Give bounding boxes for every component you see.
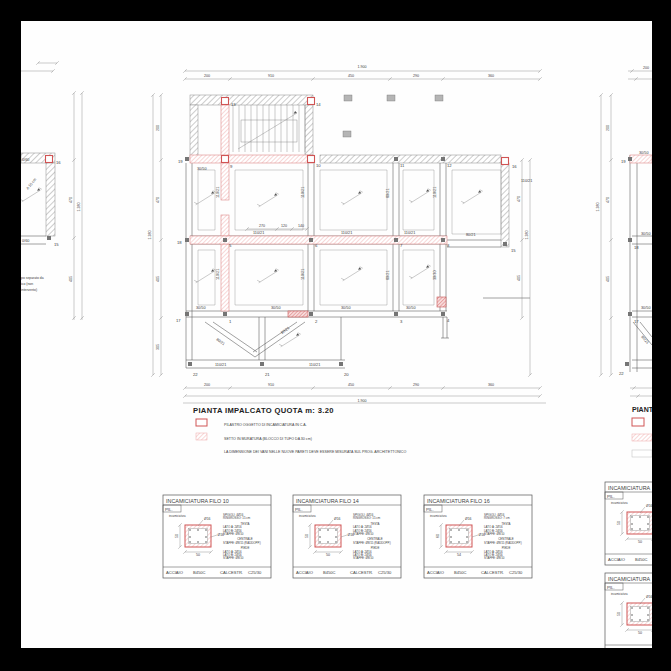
column-marker bbox=[394, 157, 398, 161]
dimension-label: 60 bbox=[436, 534, 440, 538]
rebar-dot bbox=[631, 516, 632, 517]
dimension-label: 200 bbox=[606, 125, 610, 131]
note-text: ico (non bbox=[21, 282, 33, 286]
node-number: 18 bbox=[634, 245, 639, 250]
bar-callout: Ø16 bbox=[465, 517, 472, 521]
column-marker bbox=[185, 157, 189, 161]
dimension-label: 360 bbox=[488, 74, 494, 78]
drawing-sheet-svg: PIANTA PIANTA IMPALCATO QUOTA m: 3.20 PI… bbox=[0, 0, 671, 671]
legend-swatch-red-hatch bbox=[632, 434, 652, 441]
dimension-label: 450 bbox=[348, 383, 354, 387]
rebar-dot bbox=[205, 529, 206, 530]
material-spec: ACCIAIO bbox=[427, 570, 444, 575]
beam-label: 110/21 bbox=[341, 231, 352, 235]
column-marker bbox=[628, 238, 632, 242]
beam-label: 30/50 bbox=[406, 306, 416, 310]
rebar-dot bbox=[647, 619, 648, 620]
section-note: incamiciatura bbox=[611, 592, 628, 596]
material-spec: B450C bbox=[323, 570, 336, 575]
node-number: 15 bbox=[511, 248, 516, 253]
rebar-dot bbox=[631, 614, 632, 615]
beam-label: 110/21 bbox=[404, 231, 415, 235]
frame-top bbox=[0, 0, 671, 21]
spec-line: STAFFE: Ø8/10 bbox=[353, 556, 374, 560]
detail-box-title: INCAMICIATURA FILO 14 bbox=[296, 498, 359, 504]
dimension-label: 360 bbox=[488, 383, 494, 387]
note-text: po separato da bbox=[21, 276, 44, 280]
legend-swatch-plain bbox=[632, 450, 652, 457]
spec-header: PIEDE bbox=[371, 546, 380, 550]
beam-label: 30/50 bbox=[271, 306, 281, 310]
beam-label: 0/60 bbox=[22, 158, 29, 162]
rebar-dot bbox=[466, 536, 467, 537]
column-marker bbox=[223, 312, 227, 316]
dimension-label: 140 bbox=[298, 224, 304, 228]
beam-label: 110/21 bbox=[521, 179, 532, 183]
dimension-label: 1.380 bbox=[148, 231, 152, 240]
dimension-label: 50 bbox=[617, 612, 621, 616]
column-marker-jacketed bbox=[222, 98, 229, 105]
spec-line: RINGROSSO: 15 cm bbox=[223, 516, 251, 520]
dimension-label: 270 bbox=[259, 224, 265, 228]
beam-label: 110/21 bbox=[216, 269, 220, 280]
column-core bbox=[319, 529, 338, 544]
node-number: 19 bbox=[621, 159, 626, 164]
material-spec: B450C bbox=[635, 557, 648, 562]
note-text: intervento) bbox=[21, 288, 37, 292]
dimension-label: 405 bbox=[606, 276, 610, 282]
column-core bbox=[189, 529, 208, 544]
rebar-dot bbox=[639, 516, 640, 517]
beam-label: 30/50 bbox=[341, 306, 351, 310]
node-number: 19 bbox=[178, 159, 183, 164]
spec-line: RINGROSSO: 7 cm bbox=[484, 516, 510, 520]
viewer-canvas: PIANTA PIANTA IMPALCATO QUOTA m: 3.20 PI… bbox=[0, 0, 671, 671]
pil-label: PIL. bbox=[607, 585, 615, 590]
legend-label: SETTO IN MURATURA (BLOCCO DI TUFO DA 30 … bbox=[224, 437, 312, 441]
dimension-label: 910 bbox=[268, 74, 274, 78]
spec-line: STAFFE: Ø8/10 bbox=[484, 556, 505, 560]
red-masonry-strip bbox=[221, 105, 229, 155]
beam-label: 30/50 bbox=[641, 306, 651, 310]
spec-line: STAFFE: Ø8/15 (RADDOPP.) bbox=[353, 541, 391, 545]
rebar-dot bbox=[647, 523, 648, 524]
pil-label: PIL. bbox=[607, 494, 615, 499]
spec-line: STAFFE: Ø8/10 bbox=[484, 532, 505, 536]
spec-header: TESTA bbox=[501, 522, 510, 526]
column-marker bbox=[628, 157, 632, 161]
pil-label: PIL. bbox=[295, 507, 303, 512]
red-jacket-segment bbox=[288, 311, 308, 317]
spec-header: TESTA bbox=[370, 522, 379, 526]
rebar-dot bbox=[327, 541, 328, 542]
column-marker bbox=[47, 236, 51, 240]
node-number: 13 bbox=[231, 102, 236, 107]
spec-line: STAFFE: Ø8/15 (RADDOPP.) bbox=[223, 541, 261, 545]
rebar-dot bbox=[197, 529, 198, 530]
rebar-dot bbox=[639, 607, 640, 608]
node-number: 12 bbox=[447, 163, 452, 168]
rebar-dot bbox=[319, 541, 320, 542]
section-note: incamiciatura bbox=[611, 501, 628, 505]
rebar-dot bbox=[319, 529, 320, 530]
beam-label: 30/50 bbox=[641, 232, 651, 236]
dimension-label: 200 bbox=[156, 125, 160, 131]
detail-box-title: INCAMICIATURA bbox=[608, 576, 651, 582]
rebar-dot bbox=[205, 536, 206, 537]
rebar-dot bbox=[450, 536, 451, 537]
column-marker bbox=[503, 242, 507, 246]
dimension-label: 50 bbox=[175, 534, 179, 538]
column-marker bbox=[628, 312, 632, 316]
dimension-label: 50 bbox=[326, 553, 330, 557]
dimension-label: 50 bbox=[305, 534, 309, 538]
column-marker bbox=[441, 157, 445, 161]
dimension-label: 470 bbox=[517, 196, 521, 202]
dimension-label: 200 bbox=[643, 66, 649, 70]
material-spec: ACCIAIO bbox=[608, 557, 625, 562]
column-marker bbox=[188, 362, 192, 366]
node-number: 20 bbox=[344, 372, 349, 377]
pil-label: PIL. bbox=[426, 507, 434, 512]
column-marker bbox=[394, 238, 398, 242]
node-number: 14 bbox=[316, 102, 321, 107]
rebar-dot bbox=[335, 536, 336, 537]
node-number: 22 bbox=[193, 372, 198, 377]
dimension-label: 470 bbox=[69, 197, 73, 203]
dimension-label: 1.380 bbox=[77, 203, 81, 212]
material-spec: ACCIAIO bbox=[166, 570, 183, 575]
section-note: incamiciatura bbox=[430, 514, 447, 518]
beam-label: 110/21 bbox=[216, 187, 220, 198]
rebar-dot bbox=[631, 523, 632, 524]
rebar-dot bbox=[647, 516, 648, 517]
spec-header: PIEDE bbox=[241, 546, 250, 550]
spec-header: PIEDE bbox=[502, 546, 511, 550]
material-spec: C25/30 bbox=[509, 570, 523, 575]
beam-label: 110/21 bbox=[253, 231, 264, 235]
red-masonry-strip bbox=[190, 155, 313, 163]
rebar-dot bbox=[647, 607, 648, 608]
dimension-label: 470 bbox=[156, 197, 160, 203]
rebar-dot bbox=[458, 541, 459, 542]
dimension-label: 54 bbox=[457, 553, 461, 557]
legend-swatch-red-outline bbox=[632, 418, 644, 426]
column-marker-jacketed bbox=[46, 156, 53, 163]
section-note: incamiciatura bbox=[299, 514, 316, 518]
column-marker-jacketed bbox=[308, 98, 315, 105]
dimension-label: 50 bbox=[638, 631, 642, 635]
column-marker bbox=[223, 238, 227, 242]
rebar-dot bbox=[450, 529, 451, 530]
column-marker bbox=[339, 362, 343, 366]
rebar-dot bbox=[450, 541, 451, 542]
column-marker bbox=[309, 312, 313, 316]
column-marker bbox=[394, 312, 398, 316]
rebar-dot bbox=[197, 541, 198, 542]
detail-box-title: INCAMICIATURA bbox=[608, 485, 651, 491]
column-marker bbox=[625, 362, 629, 366]
dimension-label: 290 bbox=[413, 383, 419, 387]
dimension-label: 910 bbox=[268, 383, 274, 387]
legend-swatch-red-outline bbox=[196, 419, 207, 426]
column-marker bbox=[441, 238, 445, 242]
beam-label: 110/21 bbox=[309, 363, 320, 367]
node-number: 15 bbox=[54, 242, 59, 247]
material-spec: CALCESTR. bbox=[481, 570, 504, 575]
rebar-dot bbox=[639, 528, 640, 529]
frame-bottom bbox=[0, 648, 671, 671]
column-core bbox=[450, 529, 469, 544]
masonry-wall bbox=[190, 105, 198, 160]
legend-label: PILASTRO OGGETTO DI INCAMICIATURA IN C.A… bbox=[224, 423, 307, 427]
column-core bbox=[631, 516, 650, 531]
rebar-dot bbox=[327, 529, 328, 530]
rebar-dot bbox=[631, 619, 632, 620]
rebar-dot bbox=[189, 529, 190, 530]
spec-line: STAFFE: Ø8/10 bbox=[223, 556, 244, 560]
column-marker-jacketed bbox=[308, 156, 315, 163]
node-number: 10 bbox=[316, 163, 321, 168]
rebar-dot bbox=[335, 541, 336, 542]
dimension-label: 200 bbox=[204, 74, 210, 78]
dimension-label: 1.900 bbox=[358, 65, 367, 69]
beam-label: 110/21 bbox=[433, 187, 437, 198]
existing-pillar bbox=[344, 95, 352, 101]
node-number: 16 bbox=[512, 164, 517, 169]
dimension-label: 50 bbox=[196, 553, 200, 557]
detail-box-title: INCAMICIATURA FILO 16 bbox=[427, 498, 490, 504]
spec-header: TESTA bbox=[240, 522, 249, 526]
beam-label: 80/21 bbox=[466, 233, 476, 237]
bar-callout: Ø16 bbox=[646, 595, 653, 599]
frame-right bbox=[652, 0, 671, 671]
dimension-label: 50 bbox=[617, 521, 621, 525]
column-core bbox=[631, 607, 650, 622]
beam-label: 30/30 bbox=[433, 270, 437, 280]
rebar-dot bbox=[335, 529, 336, 530]
column-marker bbox=[260, 362, 264, 366]
rebar-dot bbox=[458, 529, 459, 530]
material-spec: ACCIAIO bbox=[296, 570, 313, 575]
dimension-label: 470 bbox=[606, 197, 610, 203]
node-number: 16 bbox=[56, 160, 61, 165]
dimension-label: 405 bbox=[517, 275, 521, 281]
dimension-label: 405 bbox=[156, 276, 160, 282]
existing-pillar bbox=[343, 131, 351, 137]
beam-label: 0/60 bbox=[22, 239, 29, 243]
rebar-dot bbox=[631, 607, 632, 608]
spec-line: STAFFE: Ø8/10 bbox=[223, 532, 244, 536]
detail-box-title: INCAMICIATURA FILO 10 bbox=[166, 498, 229, 504]
rebar-dot bbox=[647, 614, 648, 615]
rebar-dot bbox=[189, 536, 190, 537]
rebar-dot bbox=[189, 541, 190, 542]
material-spec: B450C bbox=[193, 570, 206, 575]
rebar-dot bbox=[466, 541, 467, 542]
column-marker bbox=[309, 238, 313, 242]
section-note: incamiciatura bbox=[169, 514, 186, 518]
node-number: 21 bbox=[265, 372, 270, 377]
masonry-wall bbox=[46, 163, 55, 236]
beam-label: 110/21 bbox=[301, 269, 305, 280]
legend-swatch-red-hatch bbox=[196, 433, 207, 440]
legend-note: LA DIMENSIONE DEI VANI NELLE NUOVE PARET… bbox=[224, 450, 406, 454]
beam-label: 30/50 bbox=[197, 167, 207, 171]
dimension-label: 1.380 bbox=[525, 231, 529, 240]
column-marker bbox=[441, 312, 445, 316]
node-number: 18 bbox=[177, 240, 182, 245]
existing-pillar bbox=[387, 95, 395, 101]
rebar-dot bbox=[205, 541, 206, 542]
dimension-label: 405 bbox=[69, 276, 73, 282]
spec-line: STAFFE: Ø8/10 bbox=[353, 532, 374, 536]
beam-label: 110/21 bbox=[215, 363, 226, 367]
dimension-label: 1.380 bbox=[596, 203, 600, 212]
material-spec: CALCESTR. bbox=[220, 570, 243, 575]
column-marker bbox=[185, 238, 189, 242]
rebar-dot bbox=[647, 528, 648, 529]
red-masonry-strip bbox=[221, 215, 229, 236]
node-number: 11 bbox=[400, 163, 405, 168]
rebar-dot bbox=[466, 529, 467, 530]
plan-title: PIANTA IMPALCATO QUOTA m: 3.20 bbox=[193, 406, 334, 415]
node-number: 17 bbox=[176, 318, 181, 323]
masonry-wall bbox=[320, 155, 501, 163]
material-spec: CALCESTR. bbox=[350, 570, 373, 575]
masonry-wall bbox=[305, 105, 313, 155]
dimension-label: 50 bbox=[638, 540, 642, 544]
bar-callout: Ø16 bbox=[646, 504, 653, 508]
bar-callout: Ø16 bbox=[334, 517, 341, 521]
beam-label: 30/50 bbox=[196, 306, 206, 310]
dimension-label: 290 bbox=[413, 74, 419, 78]
dimension-label: 1.900 bbox=[358, 399, 367, 403]
rebar-dot bbox=[319, 536, 320, 537]
red-masonry-strip bbox=[221, 244, 229, 311]
red-masonry-strip bbox=[221, 163, 229, 200]
column-marker bbox=[185, 312, 189, 316]
dimension-label: 305 bbox=[156, 344, 160, 350]
pil-label: PIL. bbox=[165, 507, 173, 512]
rebar-dot bbox=[631, 528, 632, 529]
spec-line: RINGROSSO: 15 cm bbox=[353, 516, 381, 520]
red-masonry-strip bbox=[630, 155, 652, 163]
column-marker-jacketed bbox=[222, 156, 229, 163]
frame-left bbox=[0, 0, 21, 671]
rebar-dot bbox=[639, 619, 640, 620]
material-spec: C25/30 bbox=[248, 570, 262, 575]
beam-label: 110/21 bbox=[301, 187, 305, 198]
masonry-wall bbox=[190, 95, 313, 105]
red-jacket-column bbox=[437, 297, 446, 307]
node-number: 17 bbox=[634, 319, 639, 324]
material-spec: C25/30 bbox=[378, 570, 392, 575]
material-spec: B450C bbox=[454, 570, 467, 575]
dimension-label: 450 bbox=[348, 74, 354, 78]
beam-label: 30/50 bbox=[639, 151, 649, 155]
beam-label: 80/21 bbox=[386, 188, 390, 198]
bar-callout: Ø16 bbox=[204, 517, 211, 521]
node-number: 22 bbox=[619, 371, 624, 376]
existing-pillar bbox=[435, 95, 443, 101]
masonry-wall bbox=[501, 163, 509, 247]
column-marker-jacketed bbox=[502, 158, 509, 165]
dimension-label: 200 bbox=[204, 383, 210, 387]
spec-line: STAFFE: Ø8/15 (RADDOPP.) bbox=[484, 541, 522, 545]
dimension-label: 120 bbox=[281, 224, 287, 228]
beam-label: 80/21 bbox=[386, 270, 390, 280]
